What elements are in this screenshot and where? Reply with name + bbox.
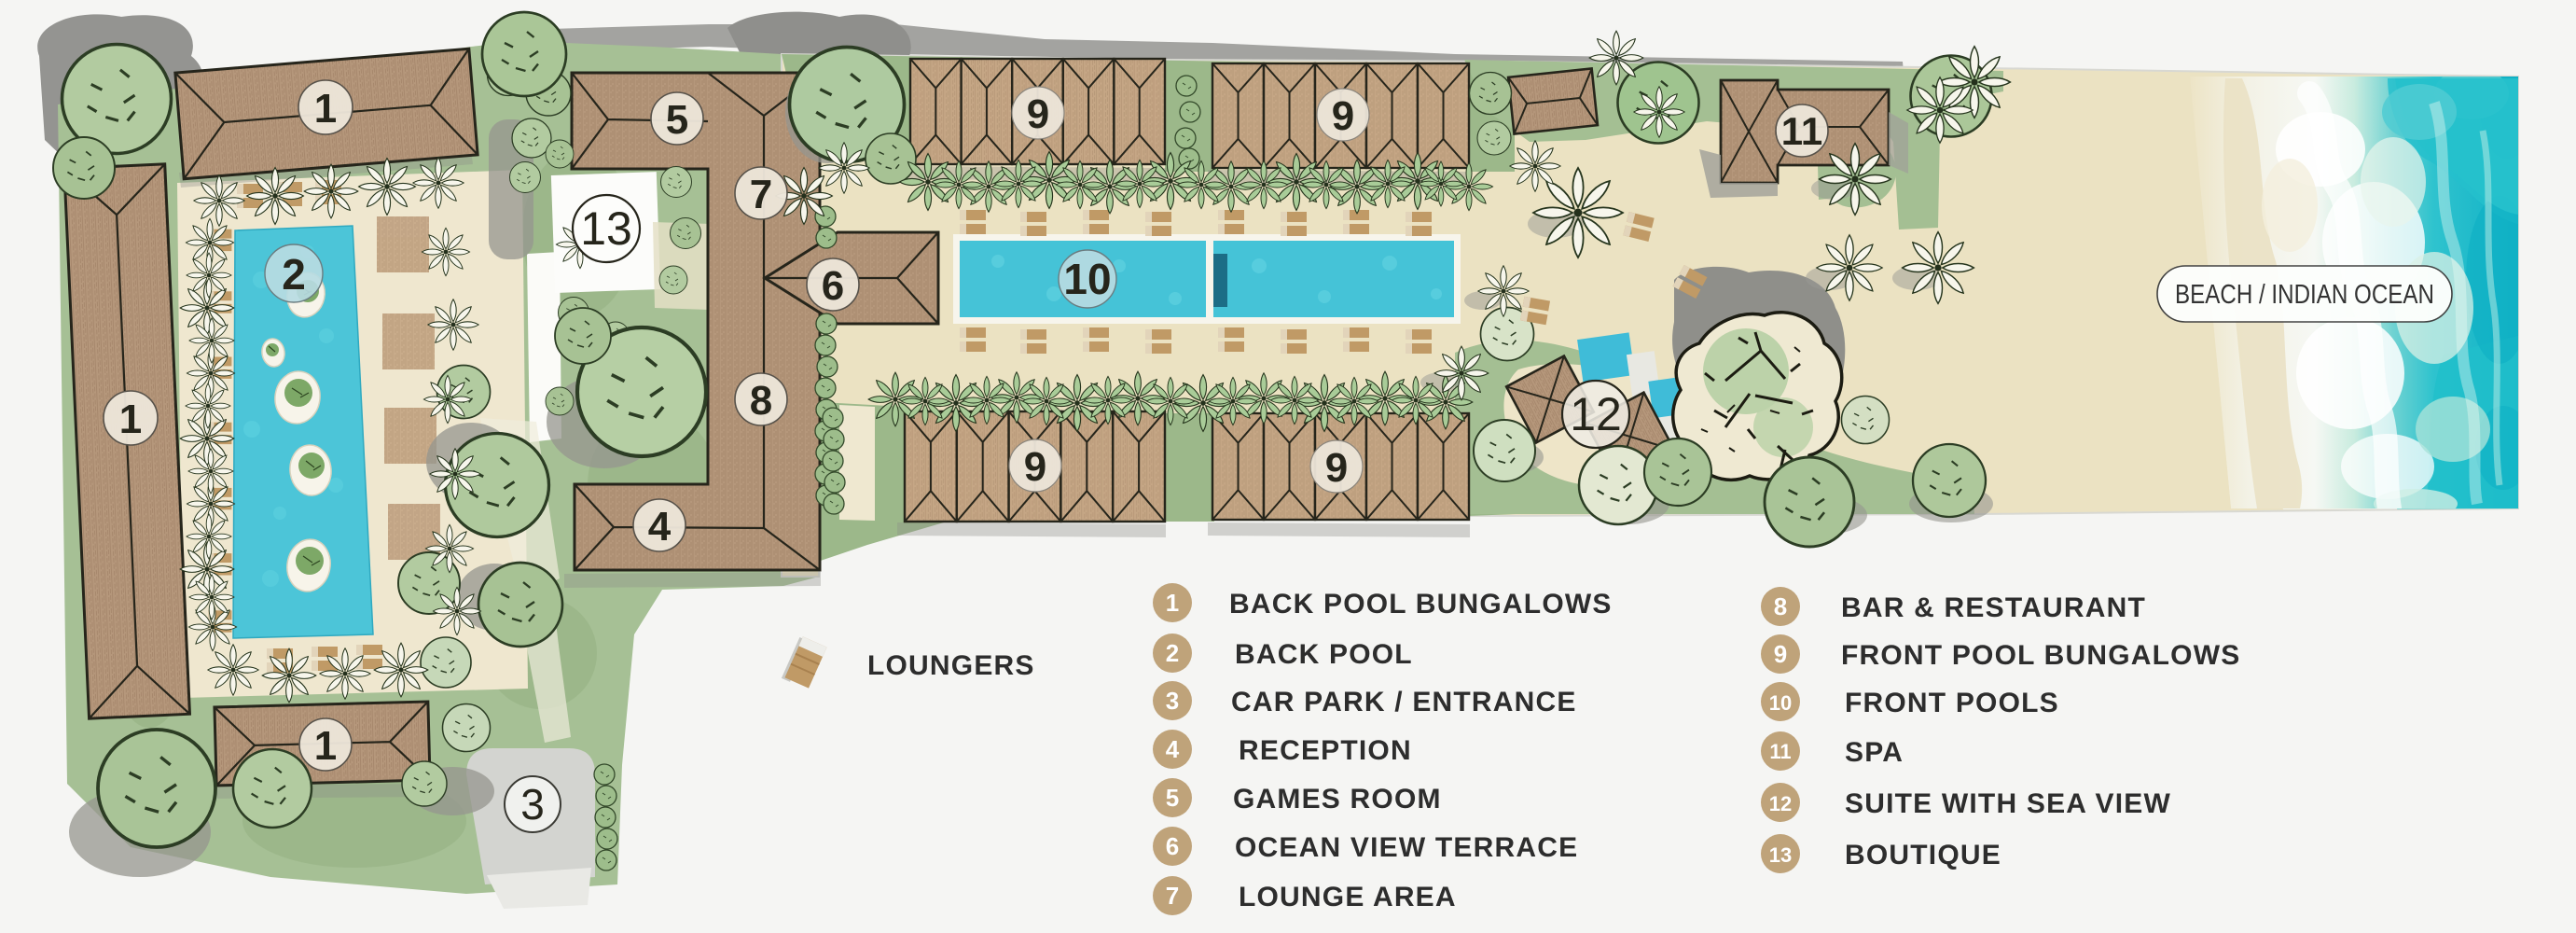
svg-text:9: 9 xyxy=(1774,640,1787,668)
svg-text:1: 1 xyxy=(119,397,142,442)
svg-text:5: 5 xyxy=(666,97,688,143)
svg-text:CAR PARK / ENTRANCE: CAR PARK / ENTRANCE xyxy=(1231,687,1577,717)
svg-text:GAMES ROOM: GAMES ROOM xyxy=(1233,784,1442,815)
svg-text:3: 3 xyxy=(520,780,545,829)
svg-text:8: 8 xyxy=(1774,592,1787,620)
svg-text:8: 8 xyxy=(750,378,772,424)
svg-text:4: 4 xyxy=(1166,735,1180,763)
svg-text:OCEAN VIEW TERRACE: OCEAN VIEW TERRACE xyxy=(1235,832,1578,863)
svg-text:12: 12 xyxy=(1570,388,1622,440)
svg-text:LOUNGERS: LOUNGERS xyxy=(867,650,1035,681)
svg-text:13: 13 xyxy=(1769,843,1792,867)
svg-text:3: 3 xyxy=(1166,687,1179,715)
svg-text:BACK POOL BUNGALOWS: BACK POOL BUNGALOWS xyxy=(1229,589,1613,620)
svg-text:SUITE WITH SEA VIEW: SUITE WITH SEA VIEW xyxy=(1845,788,2171,819)
svg-text:11: 11 xyxy=(1781,109,1822,153)
svg-text:9: 9 xyxy=(1024,444,1046,490)
svg-text:1: 1 xyxy=(314,723,337,769)
svg-text:SPA: SPA xyxy=(1845,737,1904,768)
svg-text:11: 11 xyxy=(1769,740,1791,763)
svg-text:FRONT POOLS: FRONT POOLS xyxy=(1845,688,2059,718)
svg-text:9: 9 xyxy=(1027,91,1049,137)
svg-text:9: 9 xyxy=(1332,93,1354,139)
svg-text:6: 6 xyxy=(1166,832,1179,860)
svg-text:1: 1 xyxy=(314,86,337,132)
svg-text:13: 13 xyxy=(580,202,632,255)
svg-text:7: 7 xyxy=(750,172,772,217)
svg-text:6: 6 xyxy=(822,263,844,309)
svg-text:5: 5 xyxy=(1166,784,1179,812)
svg-text:2: 2 xyxy=(1166,639,1179,667)
svg-text:7: 7 xyxy=(1166,882,1179,910)
svg-text:BEACH / INDIAN OCEAN: BEACH / INDIAN OCEAN xyxy=(2175,280,2434,310)
svg-text:LOUNGE AREA: LOUNGE AREA xyxy=(1239,882,1457,912)
svg-text:10: 10 xyxy=(1063,255,1111,303)
svg-text:BAR & RESTAURANT: BAR & RESTAURANT xyxy=(1841,592,2146,623)
svg-text:RECEPTION: RECEPTION xyxy=(1239,735,1412,766)
svg-text:12: 12 xyxy=(1769,792,1792,815)
svg-text:10: 10 xyxy=(1769,691,1792,715)
svg-text:1: 1 xyxy=(1166,589,1179,617)
svg-text:2: 2 xyxy=(282,250,306,299)
svg-text:9: 9 xyxy=(1325,445,1348,491)
svg-text:4: 4 xyxy=(648,504,672,550)
svg-text:BACK POOL: BACK POOL xyxy=(1235,639,1413,670)
svg-text:FRONT POOL BUNGALOWS: FRONT POOL BUNGALOWS xyxy=(1841,640,2240,671)
svg-text:BOUTIQUE: BOUTIQUE xyxy=(1845,840,2001,870)
